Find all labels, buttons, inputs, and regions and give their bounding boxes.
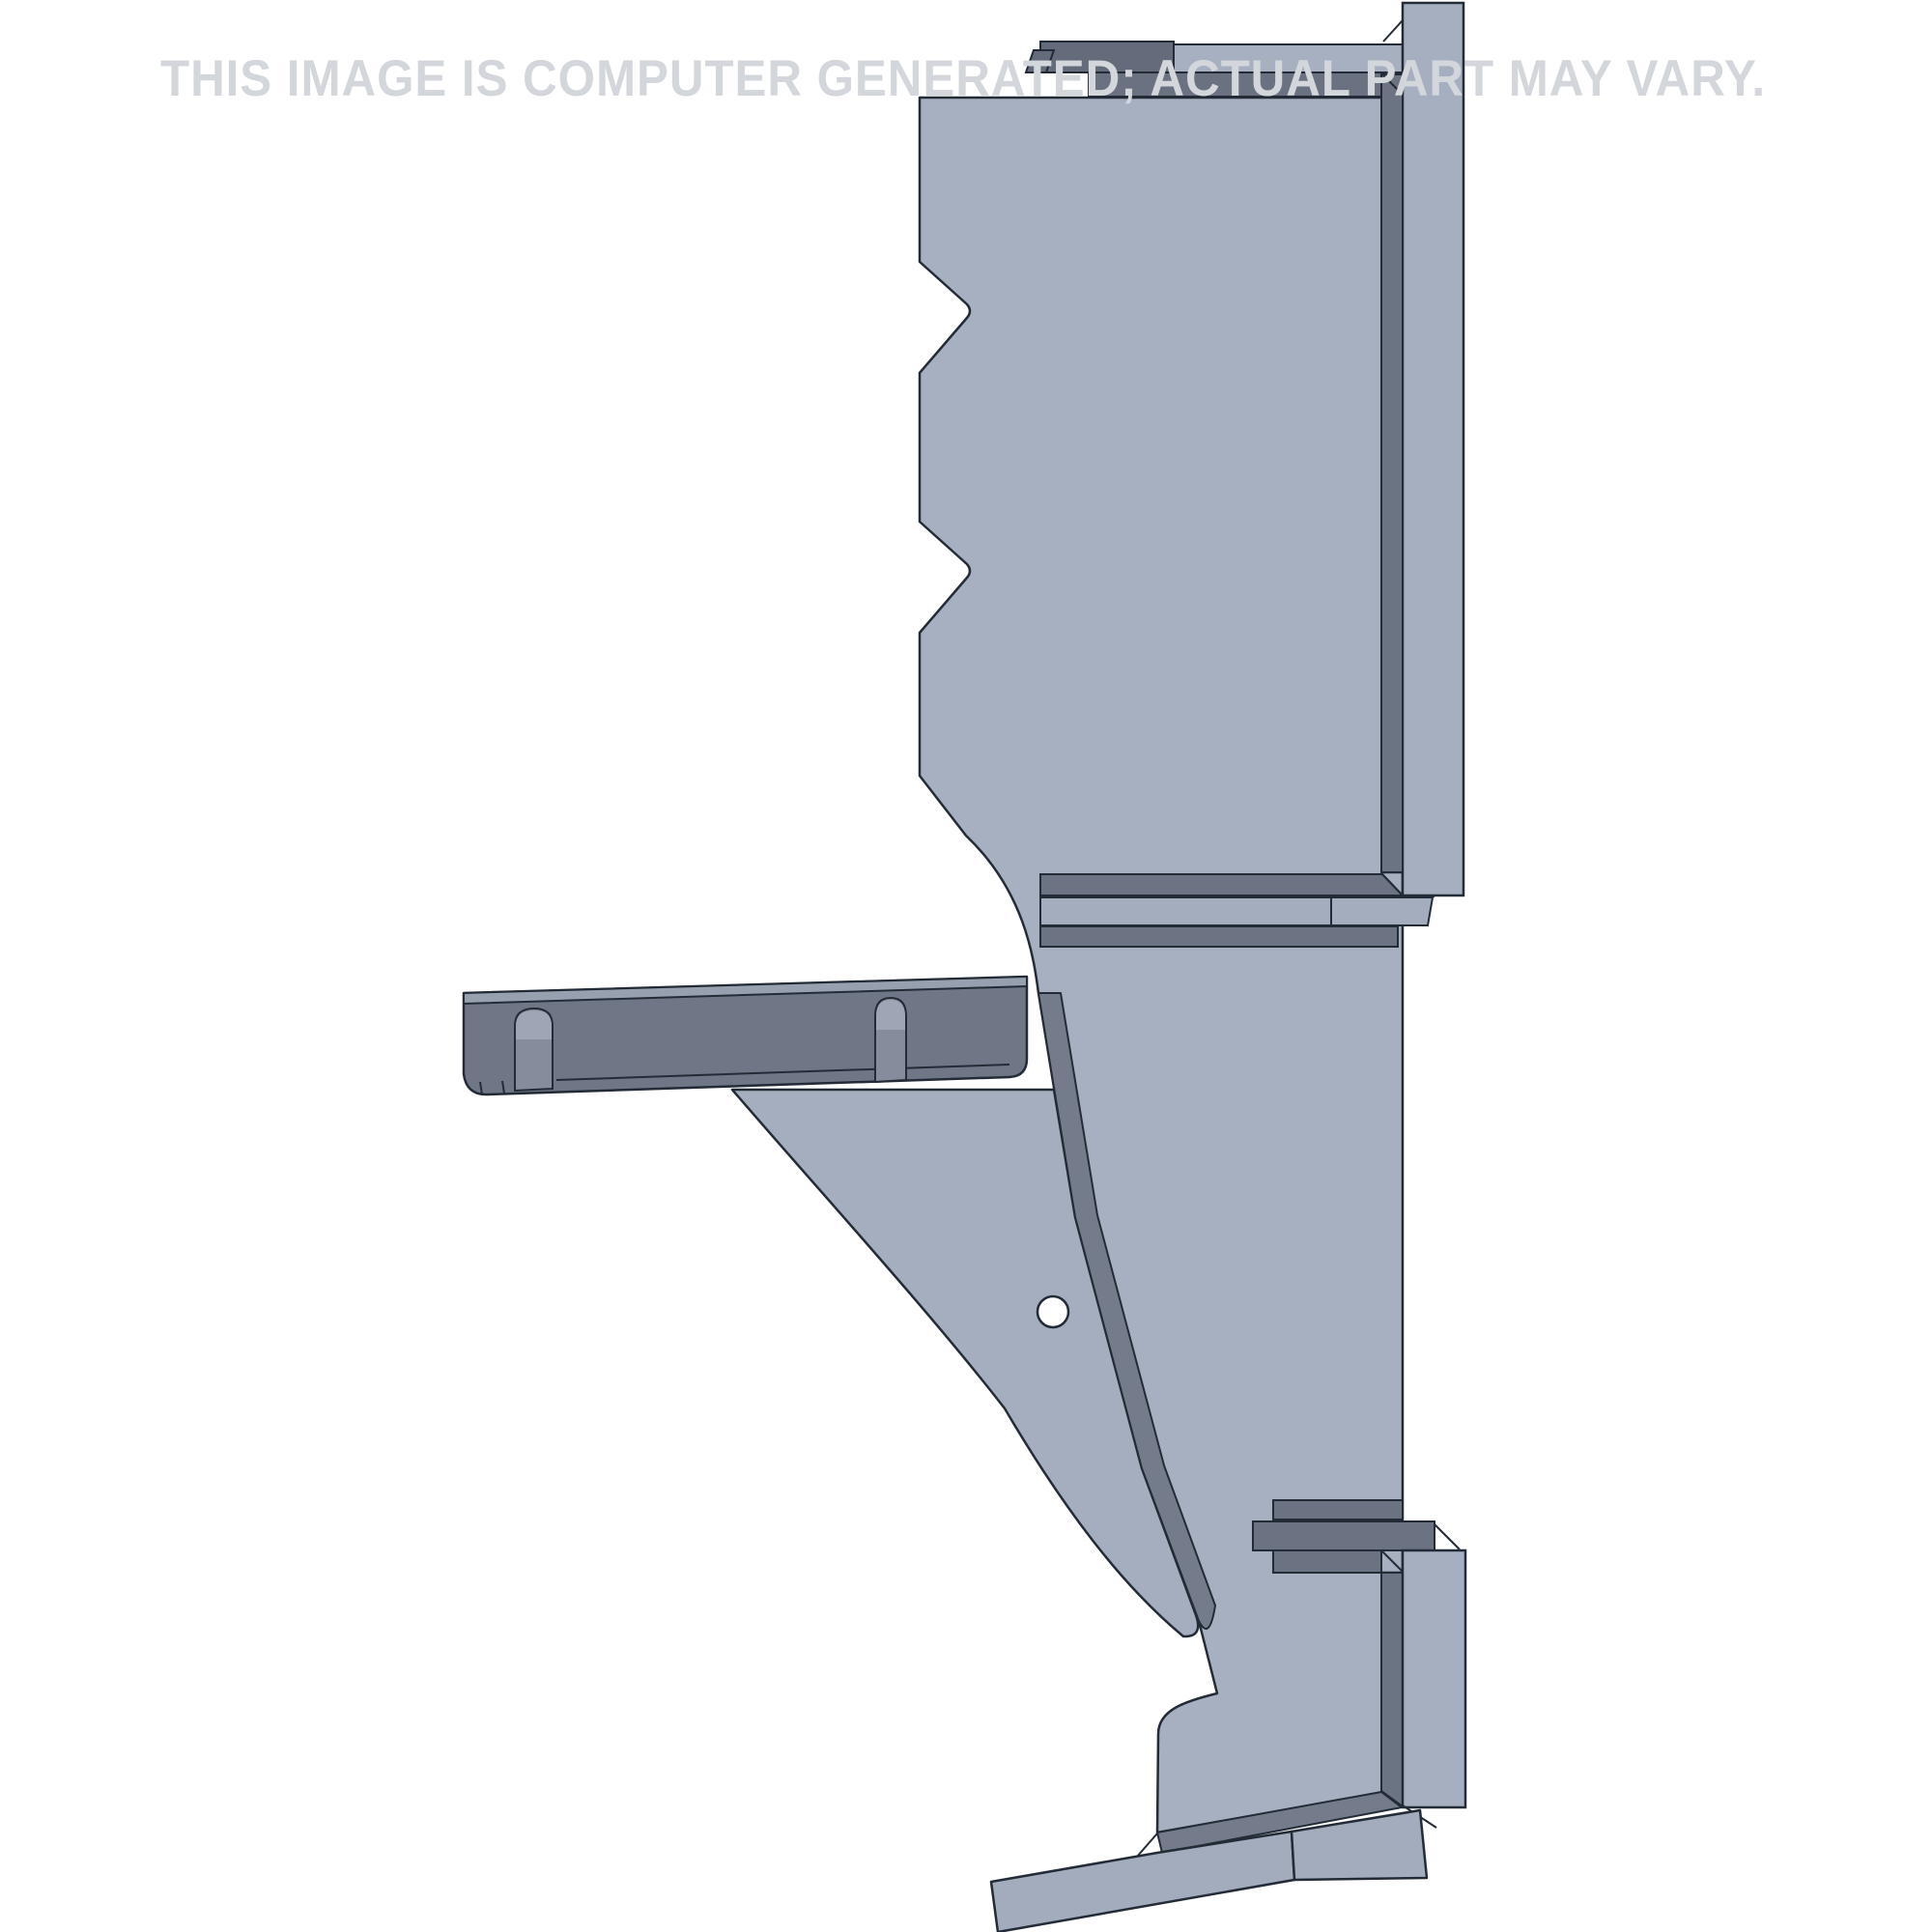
lower-flange-bar-bottom bbox=[1273, 1550, 1381, 1573]
upper-inner-dark-strip bbox=[1381, 74, 1403, 872]
lower-flange-bar-wide bbox=[1253, 1521, 1435, 1550]
bracket-render-canvas: THIS IMAGE IS COMPUTER GENERATED; ACTUAL… bbox=[0, 0, 1932, 1932]
lower-flange-bar-top bbox=[1273, 1500, 1403, 1520]
shelf-slot-right-head bbox=[876, 1000, 905, 1030]
lower-inner-dark-strip bbox=[1381, 1573, 1403, 1806]
shelf-slot-left-head bbox=[516, 1010, 552, 1039]
upper-flange-strip-middle bbox=[1040, 897, 1433, 925]
mounting-hole bbox=[1037, 1296, 1068, 1327]
shelf-arm bbox=[464, 977, 1027, 1094]
upper-flange-strip-bottom bbox=[1040, 926, 1398, 947]
cad-product-image: THIS IMAGE IS COMPUTER GENERATED; ACTUAL… bbox=[0, 0, 1932, 1932]
lower-mounting-rail bbox=[1403, 1550, 1465, 1807]
upper-mounting-rail bbox=[1403, 3, 1463, 895]
upper-flange-strip-top bbox=[1040, 874, 1403, 895]
watermark-text: THIS IMAGE IS COMPUTER GENERATED; ACTUAL… bbox=[160, 50, 1766, 107]
